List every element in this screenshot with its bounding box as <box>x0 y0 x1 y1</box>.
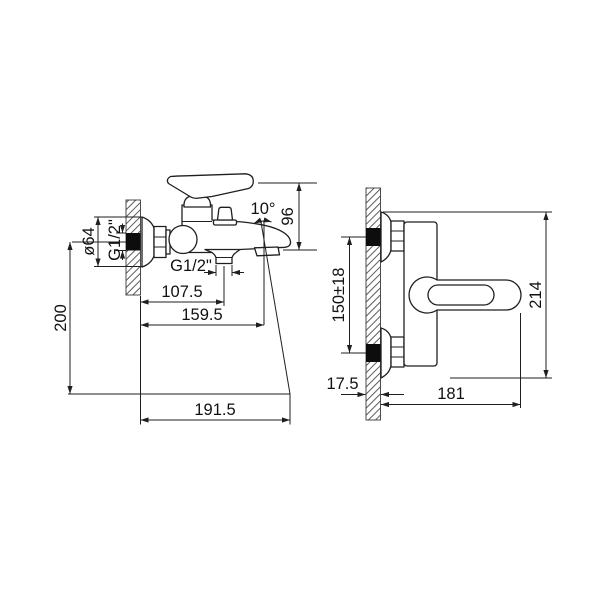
escutcheon-side <box>142 217 154 267</box>
dim-200: 200 <box>52 242 126 394</box>
inlet-connection-side <box>126 233 141 251</box>
side-view <box>126 174 291 295</box>
dim-label-107-5: 107.5 <box>161 283 202 301</box>
dim-label-214: 214 <box>527 281 545 309</box>
dim-label-o64: ø64 <box>80 227 98 255</box>
dim-label-outlet-thread: G1/2" <box>170 257 212 275</box>
dim-inlet-thread: G1/2" <box>106 219 126 261</box>
dim-angle-10deg: 10° <box>251 200 276 223</box>
dim-label-17-5: 17.5 <box>326 375 358 393</box>
dim-label-150-18: 150±18 <box>330 268 348 323</box>
drawing-canvas: 200 ø64 G1/2" G1/2" 1 <box>0 0 600 600</box>
dim-label-10deg: 10° <box>251 200 276 218</box>
ball-joint <box>169 226 197 254</box>
dim-191-5: 191.5 <box>141 401 291 420</box>
escutcheon-bottom-front <box>381 328 391 378</box>
mounting-nut-side <box>154 227 166 258</box>
handle-lever <box>167 174 253 198</box>
dim-150-18: 150±18 <box>330 237 366 353</box>
wall-section-front <box>366 188 381 420</box>
mounting-nut-top-front <box>391 221 404 251</box>
dim-outlet-thread: G1/2" <box>170 257 244 276</box>
bottom-connection-front <box>366 344 381 362</box>
dim-17-5: 17.5 <box>326 375 404 395</box>
top-connection-front <box>366 228 381 246</box>
escutcheon-top-front <box>381 212 391 262</box>
dim-label-191-5: 191.5 <box>194 401 235 419</box>
dim-label-96: 96 <box>279 207 297 225</box>
handle-inner-contour <box>428 285 494 305</box>
diverter-base <box>214 220 237 225</box>
technical-drawing: 200 ø64 G1/2" G1/2" 1 <box>0 0 600 600</box>
dim-159-5: 159.5 <box>141 306 265 325</box>
dim-label-200: 200 <box>52 304 70 332</box>
dim-label-159-5: 159.5 <box>181 306 222 324</box>
spout-aerator <box>255 247 280 256</box>
dim-label-inlet-thread: G1/2" <box>106 219 124 261</box>
dim-label-181: 181 <box>437 385 465 403</box>
diverter-knob <box>218 207 233 220</box>
mounting-nut-bottom-front <box>391 337 404 367</box>
